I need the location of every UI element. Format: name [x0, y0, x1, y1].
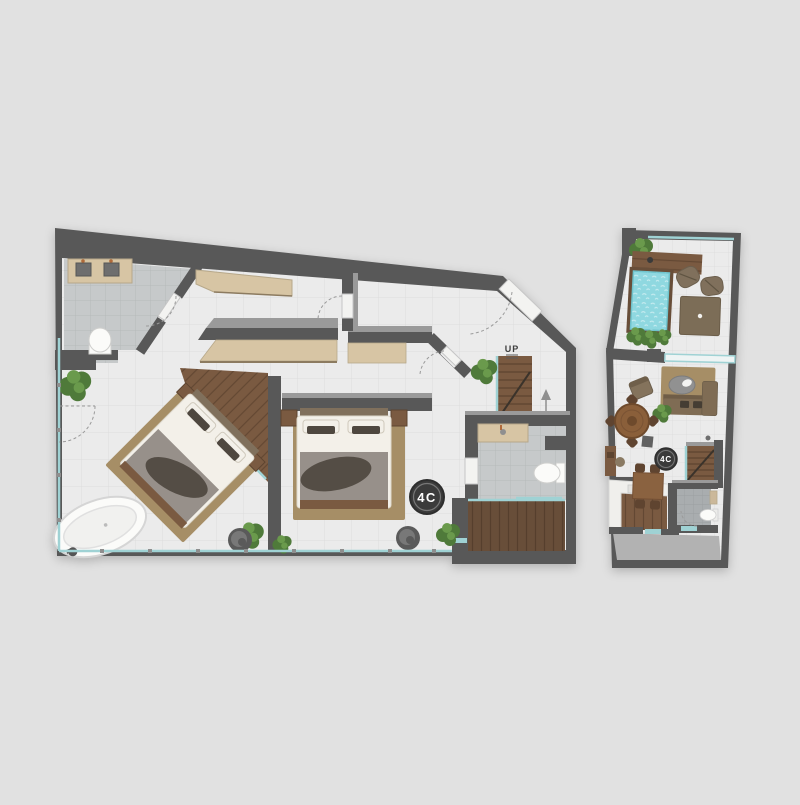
lower-floor-plan: UP: [46, 228, 576, 569]
vanity-icon: [478, 424, 528, 442]
door-threshold: [645, 529, 661, 534]
closet-wall-a: [198, 318, 338, 363]
pot-icon: [396, 526, 420, 550]
divider-post: [647, 349, 661, 362]
unit-badge: 4C: [410, 480, 444, 514]
upper-floor-plan: 4C: [604, 228, 741, 568]
beanbag-icon: [700, 276, 724, 297]
bed-icon: [281, 408, 407, 509]
balcony-floor: [613, 533, 721, 560]
toilet-icon: [700, 509, 718, 521]
bathroom-floor: [677, 487, 711, 527]
door-threshold: [681, 526, 697, 531]
unit-badge: 4C: [655, 448, 677, 470]
stool-icon: [641, 436, 653, 448]
unit-badge-label: 4C: [660, 455, 672, 464]
stairs-up-label: UP: [505, 344, 520, 354]
unit-badge-label: 4C: [417, 490, 437, 505]
floor-plan-canvas: UP: [0, 0, 800, 800]
floor-plan-sheet: UP: [0, 0, 800, 800]
toilet-icon: [534, 463, 565, 483]
terrace-slider-door: [665, 354, 735, 363]
kitchen-bath-wall: [668, 483, 677, 531]
pot-icon: [228, 528, 252, 552]
door-opening: [342, 294, 353, 318]
toilet-icon: [89, 328, 111, 354]
balcony-deck: [452, 498, 576, 564]
daybed-icon: [679, 296, 720, 335]
bathroom-2: [465, 411, 570, 500]
vanity-icon: [68, 259, 132, 283]
coffee-table-icon: [669, 376, 695, 394]
deck-door: [455, 538, 467, 543]
newel: [706, 436, 711, 441]
door-opening: [465, 458, 478, 484]
vanity-icon: [710, 491, 717, 504]
